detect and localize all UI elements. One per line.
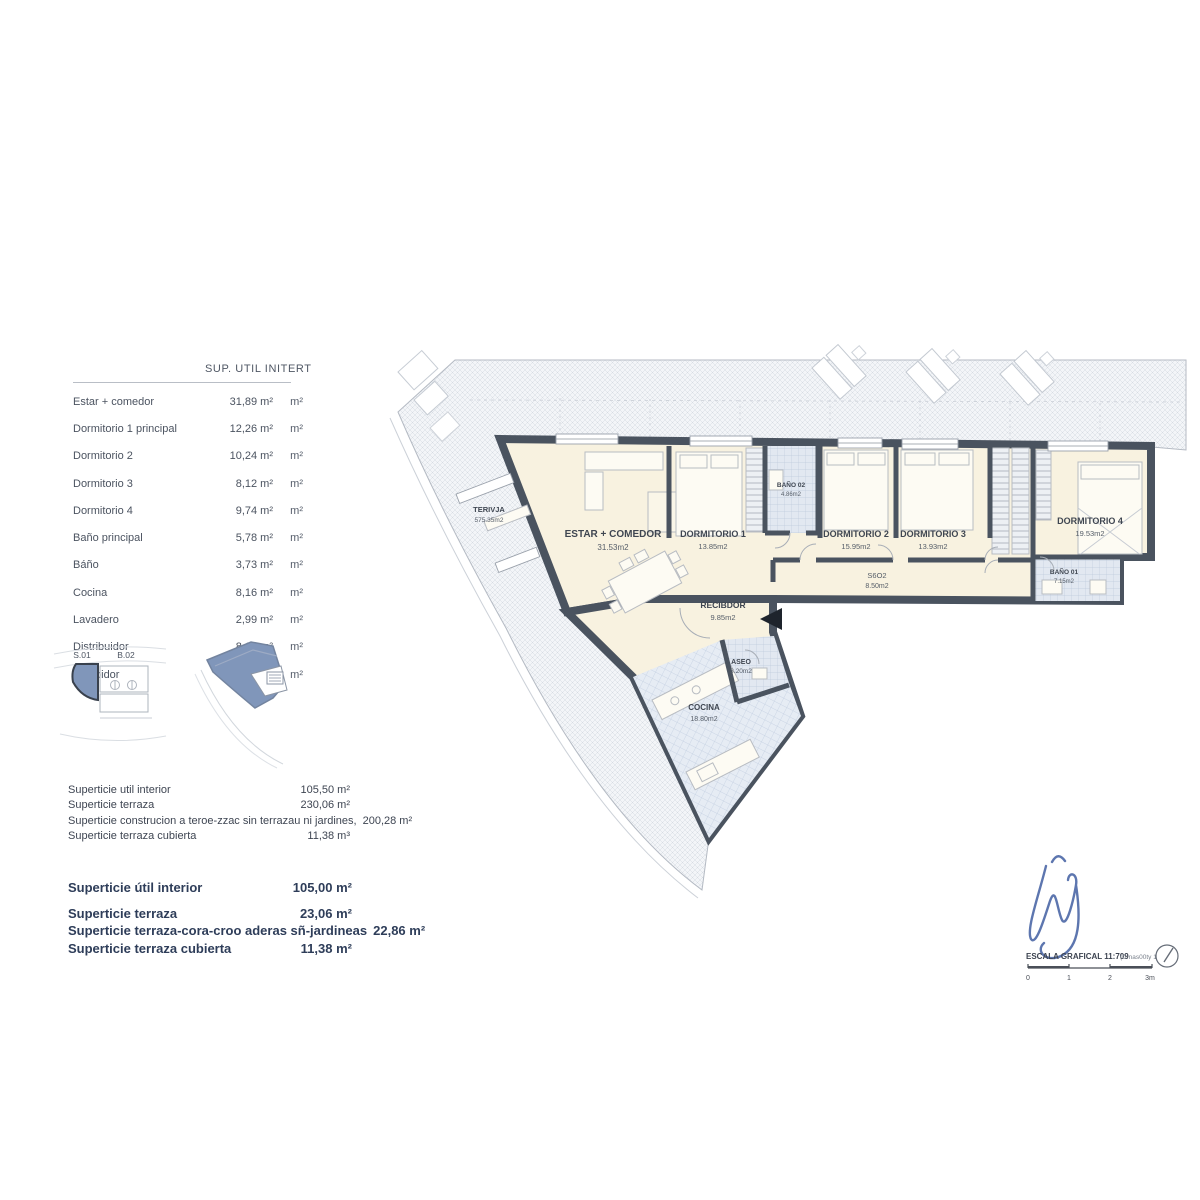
bath-fixture xyxy=(1090,580,1106,594)
scale-tick-3: 3m xyxy=(1145,975,1155,982)
scale-tick-0: 0 xyxy=(1026,975,1030,982)
wardrobe xyxy=(1036,450,1051,520)
floor-plan-drawing: TERIVJA 575.35m2 ESTAR + COMEDOR 31.53m2… xyxy=(0,0,1200,1200)
label-pasillo: S6O2 xyxy=(867,571,886,580)
bed-dorm2 xyxy=(824,450,888,530)
scale-note: (C nas00ty 1 xyxy=(1120,954,1157,961)
label-dorm1: DORMITORIO 1 xyxy=(680,529,746,539)
sofa xyxy=(585,452,663,470)
label-pasillo-area: 8.50m2 xyxy=(865,583,888,590)
label-bano02-area: 4.86m2 xyxy=(781,492,802,498)
floor-plan-sheet: SUP. UTIL INITERT Estar + comedor31,89 m… xyxy=(0,0,1200,1200)
signature xyxy=(1030,856,1079,958)
scale-tick-2: 2 xyxy=(1108,975,1112,982)
label-dorm4-area: 19.53m2 xyxy=(1075,529,1104,538)
wardrobe xyxy=(746,448,763,532)
label-bano01-area: 7.15m2 xyxy=(1054,579,1075,585)
aseo-fixture xyxy=(752,668,767,679)
label-terraza-area: 575.35m2 xyxy=(475,517,504,524)
label-cocina: COCINA xyxy=(688,703,720,712)
sofa xyxy=(585,472,603,510)
label-recibidor: RECIBDOR xyxy=(700,600,745,610)
terrace-area xyxy=(390,335,1186,898)
label-estar: ESTAR + COMEDOR xyxy=(565,529,663,540)
label-cocina-area: 18.80m2 xyxy=(690,716,717,723)
label-dorm2-area: 15.95m2 xyxy=(841,542,870,551)
scale-tick-1: 1 xyxy=(1067,975,1071,982)
label-dorm3: DORMITORIO 3 xyxy=(900,529,966,539)
bed-dorm4 xyxy=(1078,462,1142,554)
label-estar-area: 31.53m2 xyxy=(597,543,629,552)
label-dorm3-area: 13.93m2 xyxy=(918,542,947,551)
label-bano01: BAÑO 01 xyxy=(1050,567,1079,576)
wardrobe xyxy=(1012,448,1029,554)
label-dorm1-area: 13.85m2 xyxy=(698,542,727,551)
label-aseo: ASEO xyxy=(731,659,751,666)
label-dorm4: DORMITORIO 4 xyxy=(1057,516,1123,526)
label-terraza: TERIVJA xyxy=(473,505,505,514)
label-aseo-area: 3.20m2 xyxy=(730,668,752,675)
label-dorm2: DORMITORIO 2 xyxy=(823,529,889,539)
scale-caption: ESCALA GRAFICAL 11:709 xyxy=(1026,952,1129,961)
north-marker-icon xyxy=(1156,945,1178,967)
bed-dorm3 xyxy=(901,450,973,530)
wardrobe xyxy=(992,448,1009,554)
label-bano02: BAÑO 02 xyxy=(777,480,806,489)
label-recibidor-area: 9.85m2 xyxy=(710,613,735,622)
scale-bar: ESCALA GRAFICAL 11:709 (C nas00ty 1 0 1 … xyxy=(1026,945,1178,982)
bed-dorm1 xyxy=(676,452,742,536)
